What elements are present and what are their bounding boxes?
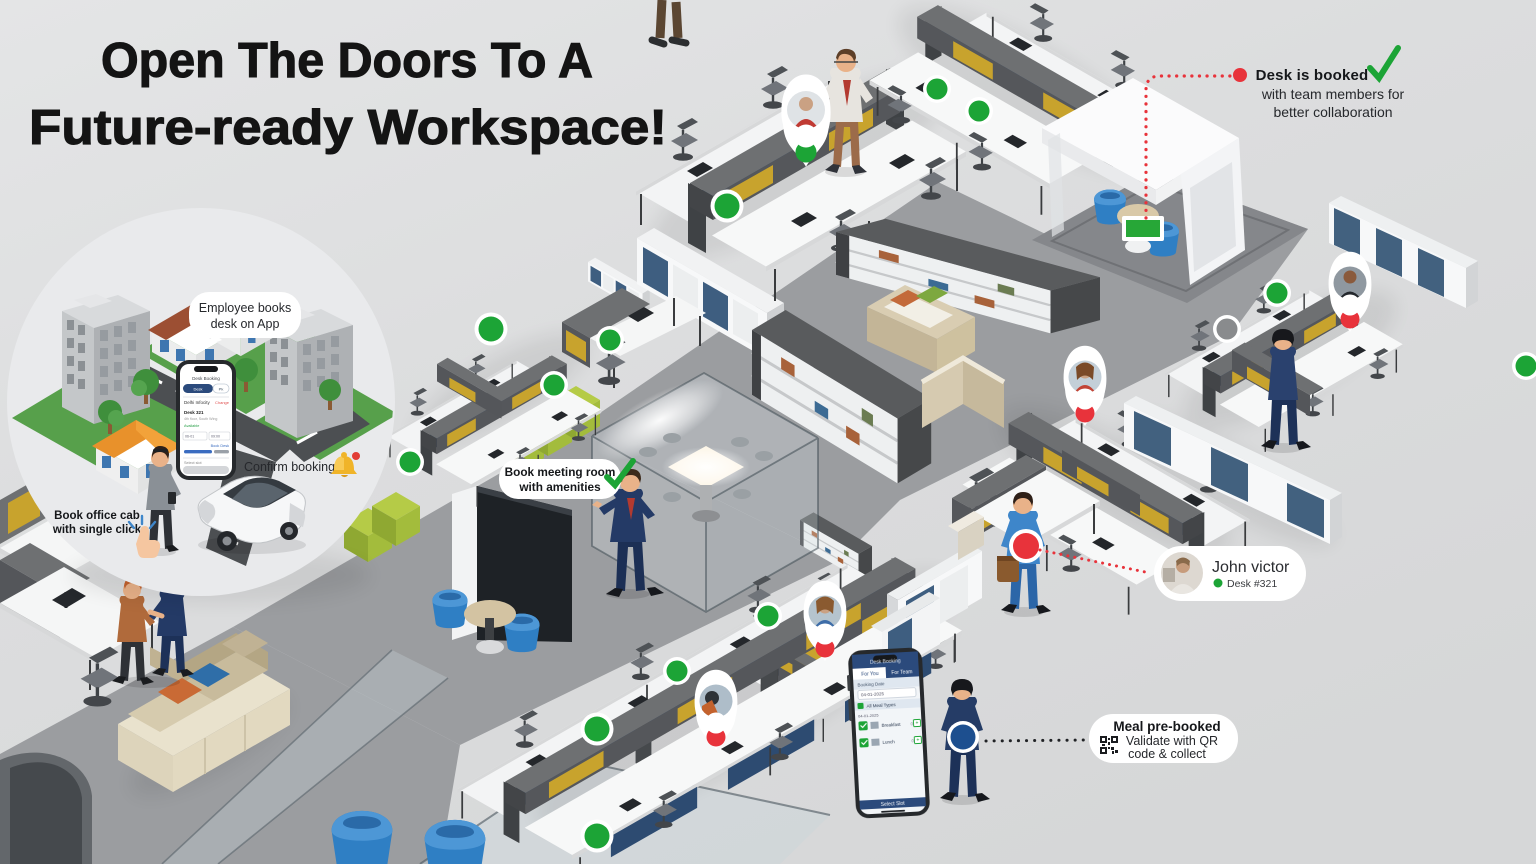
svg-text:Employee books: Employee books <box>199 301 291 315</box>
svg-text:with single click: with single click <box>52 524 142 536</box>
svg-text:Select slot: Select slot <box>184 461 202 465</box>
svg-text:Desk #321: Desk #321 <box>1227 578 1277 590</box>
svg-text:06-01: 06-01 <box>185 435 194 439</box>
svg-text:Pk: Pk <box>219 387 224 392</box>
svg-text:Future-ready Workspace!: Future-ready Workspace! <box>29 101 667 155</box>
svg-text:Open The Doors To A: Open The Doors To A <box>101 34 593 88</box>
svg-text:Lunch: Lunch <box>882 739 895 745</box>
svg-text:Desk is booked: Desk is booked <box>1256 67 1369 84</box>
svg-text:For Team: For Team <box>891 669 912 676</box>
svg-text:Delhi Infocity: Delhi Infocity <box>184 400 211 405</box>
svg-text:Select Slot: Select Slot <box>881 801 906 808</box>
svg-text:Desk Booking: Desk Booking <box>192 376 220 381</box>
svg-text:desk on App: desk on App <box>211 317 280 331</box>
svg-text:Desk: Desk <box>193 387 202 392</box>
svg-text:+: + <box>916 738 919 744</box>
svg-text:Available: Available <box>184 424 199 428</box>
svg-text:Change: Change <box>215 400 230 405</box>
svg-text:Book office cab: Book office cab <box>54 510 140 522</box>
svg-text:John victor: John victor <box>1212 559 1290 576</box>
svg-text:Book meeting room: Book meeting room <box>505 465 616 479</box>
svg-text:Confirm booking: Confirm booking <box>244 460 335 474</box>
svg-text:Desk 321: Desk 321 <box>184 410 204 415</box>
svg-text:Breakfast: Breakfast <box>881 722 901 728</box>
svg-text:Book Desk: Book Desk <box>211 444 229 448</box>
svg-text:For You: For You <box>861 671 879 678</box>
svg-text:with amenities: with amenities <box>518 480 601 494</box>
svg-text:4th floor, South Wing: 4th floor, South Wing <box>184 417 217 421</box>
svg-text:+: + <box>915 721 918 727</box>
svg-text:Validate with QR: Validate with QR <box>1126 734 1218 748</box>
svg-text:better collaboration: better collaboration <box>1273 104 1392 120</box>
svg-text:code & collect: code & collect <box>1128 747 1206 761</box>
svg-text:Meal pre-booked: Meal pre-booked <box>1113 719 1220 734</box>
svg-text:09:00: 09:00 <box>211 435 220 439</box>
svg-text:with team members for: with team members for <box>1261 86 1405 102</box>
